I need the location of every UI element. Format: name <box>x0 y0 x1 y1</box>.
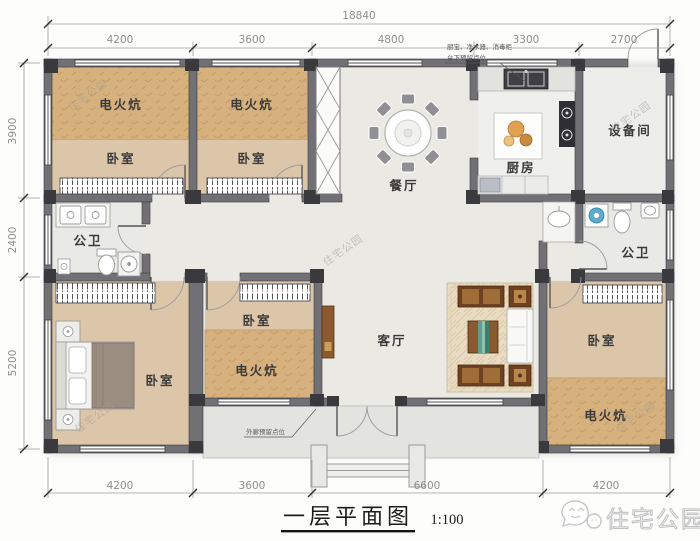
porch <box>203 406 539 487</box>
dim-top: 2700 <box>611 34 638 46</box>
dim-top: 4200 <box>107 34 134 46</box>
sink-icon <box>60 206 81 224</box>
dim-left: 3900 <box>7 118 19 145</box>
window <box>212 60 300 66</box>
window <box>45 320 51 420</box>
dim-top: 3600 <box>239 34 266 46</box>
window <box>667 95 673 160</box>
room-label: 卧室 <box>145 373 174 388</box>
wood-bench <box>458 365 504 386</box>
brand-watermark: 住宅公园 <box>562 501 700 532</box>
headboard <box>56 342 66 409</box>
dim-top: 4800 <box>378 34 405 46</box>
title-scale: 1:100 <box>430 512 463 528</box>
room-label: 客厅 <box>376 333 406 348</box>
room-label: 电火炕 <box>99 97 143 112</box>
window <box>45 95 51 165</box>
dim-overall: 18840 <box>342 10 375 22</box>
coffee-table <box>468 321 498 353</box>
brand-text: 住宅公园 <box>606 507 700 532</box>
room-label: 电火炕 <box>584 408 628 423</box>
pillow <box>69 378 86 404</box>
window <box>570 446 650 452</box>
wood-bench <box>458 286 504 307</box>
food-plate-icon <box>508 121 524 137</box>
room-label: 公卫 <box>621 246 650 260</box>
pillow <box>69 347 86 373</box>
room-label: 卧室 <box>242 313 271 328</box>
room-label: 电火炕 <box>235 363 279 378</box>
shower-icon <box>118 252 140 276</box>
kitchen-counter-bottom <box>478 176 548 194</box>
sink-icon <box>480 178 500 192</box>
room-label: 卧室 <box>237 151 266 166</box>
hall-sink <box>543 202 575 242</box>
radiator <box>583 285 662 303</box>
sink-icon <box>641 203 659 218</box>
stove-icon <box>559 101 575 147</box>
room-label: 厨房 <box>506 160 535 175</box>
tv-cabinet <box>322 306 334 358</box>
washing-machine-icon <box>585 204 608 227</box>
window <box>667 300 673 390</box>
dim-top: 3300 <box>513 34 540 46</box>
dim-left: 5200 <box>7 350 19 377</box>
window <box>75 60 180 66</box>
annotation-text: 外廊预留点位 <box>246 427 286 436</box>
floor-plan-drawing: 电火炕 卧室 电火炕 卧室 餐厅 厨房 设备间 公卫 公卫 卧室 电火炕 卧室 … <box>0 0 700 541</box>
dim-bottom: 6600 <box>414 480 441 492</box>
room-label: 电火炕 <box>230 97 274 112</box>
drawing-title: 一层平面图 1:100 <box>281 504 464 532</box>
chat-bubbles-icon <box>562 501 601 528</box>
annotation-text: 厨宝、净水器、消毒柜 <box>447 42 513 51</box>
kitchen-sink-icon <box>504 69 548 89</box>
sink-icon <box>85 206 106 224</box>
side-table <box>509 286 531 307</box>
radiator <box>60 178 183 194</box>
title-text: 一层平面图 <box>283 504 413 529</box>
dim-left: 2400 <box>7 227 19 254</box>
blanket <box>92 343 134 408</box>
title-underline <box>281 530 415 532</box>
room-label: 餐厅 <box>388 178 418 193</box>
dim-bottom: 4200 <box>593 480 620 492</box>
lattice-screen <box>316 67 340 194</box>
radiator <box>240 284 310 301</box>
radiator <box>207 178 302 194</box>
window <box>80 446 165 452</box>
window <box>218 399 290 405</box>
window <box>45 215 51 265</box>
room-label: 卧室 <box>106 151 135 166</box>
food-plate-icon <box>520 134 532 146</box>
side-table <box>509 365 531 386</box>
window <box>348 60 422 66</box>
toilet-icon <box>97 249 116 275</box>
room-label: 卧室 <box>587 333 616 348</box>
radiator <box>56 283 155 303</box>
floor-drain-icon <box>58 259 70 274</box>
annotation-text: 台下预留点位 <box>447 53 487 62</box>
dim-bottom: 3600 <box>239 480 266 492</box>
kitchen-island <box>494 113 542 159</box>
dim-bottom: 4200 <box>107 480 134 492</box>
window <box>427 399 503 405</box>
window <box>667 210 673 260</box>
floor-plan-page: 电火炕 卧室 电火炕 卧室 餐厅 厨房 设备间 公卫 公卫 卧室 电火炕 卧室 … <box>0 0 700 541</box>
toilet-icon <box>613 203 631 233</box>
sofa <box>507 309 533 363</box>
food-plate-icon <box>504 136 514 146</box>
sink-icon <box>548 211 570 227</box>
room-label: 公卫 <box>73 234 102 248</box>
